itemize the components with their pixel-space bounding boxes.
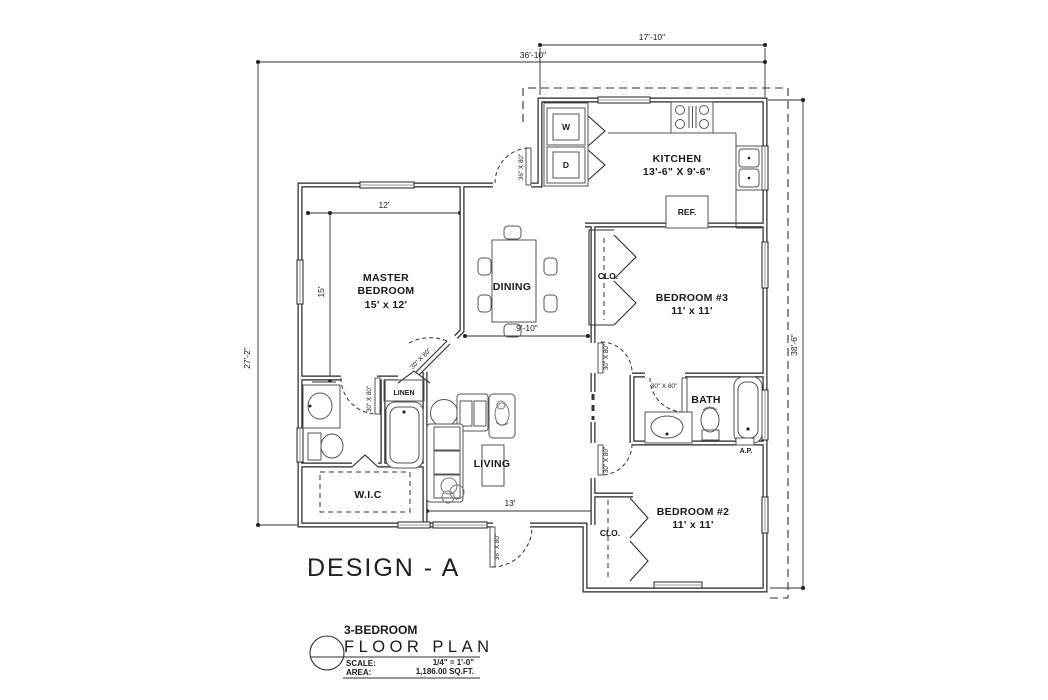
- detail-bubble: [310, 636, 344, 670]
- label-front-door: 36" X 80": [494, 534, 501, 560]
- label-bath: BATH: [691, 394, 721, 406]
- label-linen: LINEN: [394, 390, 415, 397]
- sofa: [427, 424, 463, 502]
- bath-door-panel: [682, 378, 687, 412]
- dim-left-overall: 27'-2": [242, 347, 252, 369]
- dim-living-width: 13': [504, 498, 515, 508]
- floor-plan-sheet: KITCHEN 13'-6" X 9'-6" MASTER BEDROOM 15…: [0, 0, 1048, 700]
- label-master-size: 15' x 12': [365, 299, 408, 311]
- label-bedroom3-size: 11' x 11': [671, 305, 713, 317]
- armchair: [489, 394, 515, 438]
- label-back-door: 36" X 80": [518, 154, 525, 180]
- label-bedroom2-door: 30" X 80": [603, 447, 610, 473]
- side-table: [431, 400, 458, 427]
- titleblock-title: FLOOR PLAN: [344, 638, 494, 656]
- design-title: DESIGN - A: [307, 554, 460, 582]
- label-bedroom3: BEDROOM #3: [656, 292, 728, 304]
- scale-value: 1/4" = 1'-0": [433, 658, 474, 667]
- label-master-bath-door: 30" X 80": [366, 386, 373, 412]
- title-area: DESIGN - A 3-BEDROOM FLOOR PLAN SCALE: 1…: [307, 554, 494, 678]
- label-living: LIVING: [474, 458, 511, 470]
- label-refrigerator: REF.: [678, 207, 696, 217]
- master-toilet: [308, 433, 321, 460]
- dim-master-depth: 15': [316, 286, 326, 297]
- floor-plan-drawing: KITCHEN 13'-6" X 9'-6" MASTER BEDROOM 15…: [0, 0, 1048, 700]
- back-door-panel: [526, 148, 531, 185]
- scale-label: SCALE:: [346, 659, 376, 668]
- master-bath-door-panel: [375, 378, 380, 414]
- dim-top-overall: 36'-10": [520, 50, 546, 60]
- label-closet-bedroom2: CLO.: [600, 528, 620, 538]
- label-closet-bedroom3: CLO.: [598, 271, 618, 281]
- dim-dining-width: 9'-10": [516, 323, 538, 333]
- area-label: AREA:: [346, 668, 371, 677]
- label-dryer: D: [563, 160, 569, 170]
- label-bedroom2-size: 11' x 11': [672, 519, 714, 531]
- kitchen-sink: [736, 146, 762, 190]
- label-master-2: BEDROOM: [358, 285, 415, 297]
- dim-top-kitchen: 17'-10": [639, 32, 665, 42]
- area-value: 1,186.00 SQ.FT.: [416, 667, 474, 676]
- dim-right-overall: 38'-6": [789, 334, 799, 356]
- master-vanity: [303, 385, 340, 428]
- label-bedroom3-door: 30" X 80": [603, 344, 610, 370]
- kitchen-fixtures: [544, 102, 762, 228]
- label-bedroom2: BEDROOM #2: [657, 506, 729, 518]
- label-kitchen-size: 13'-6" X 9'-6": [643, 166, 711, 178]
- wic-bifold: [352, 455, 378, 467]
- label-wic: W.I.C: [354, 489, 381, 501]
- label-washer: W: [562, 122, 571, 132]
- label-access-panel: A.P.: [740, 448, 753, 455]
- access-panel-hatch: [736, 438, 754, 445]
- laundry-bifold: [587, 115, 605, 181]
- label-dining: DINING: [493, 281, 532, 293]
- dim-master-width: 12': [378, 200, 389, 210]
- label-bath-door: 30" X 80": [651, 383, 677, 390]
- label-kitchen: KITCHEN: [653, 153, 702, 165]
- living-furniture: [427, 394, 515, 503]
- bedroom2-closet-bifold: [630, 498, 648, 581]
- titleblock-subtitle: 3-BEDROOM: [344, 623, 417, 637]
- label-master-1: MASTER: [363, 272, 409, 284]
